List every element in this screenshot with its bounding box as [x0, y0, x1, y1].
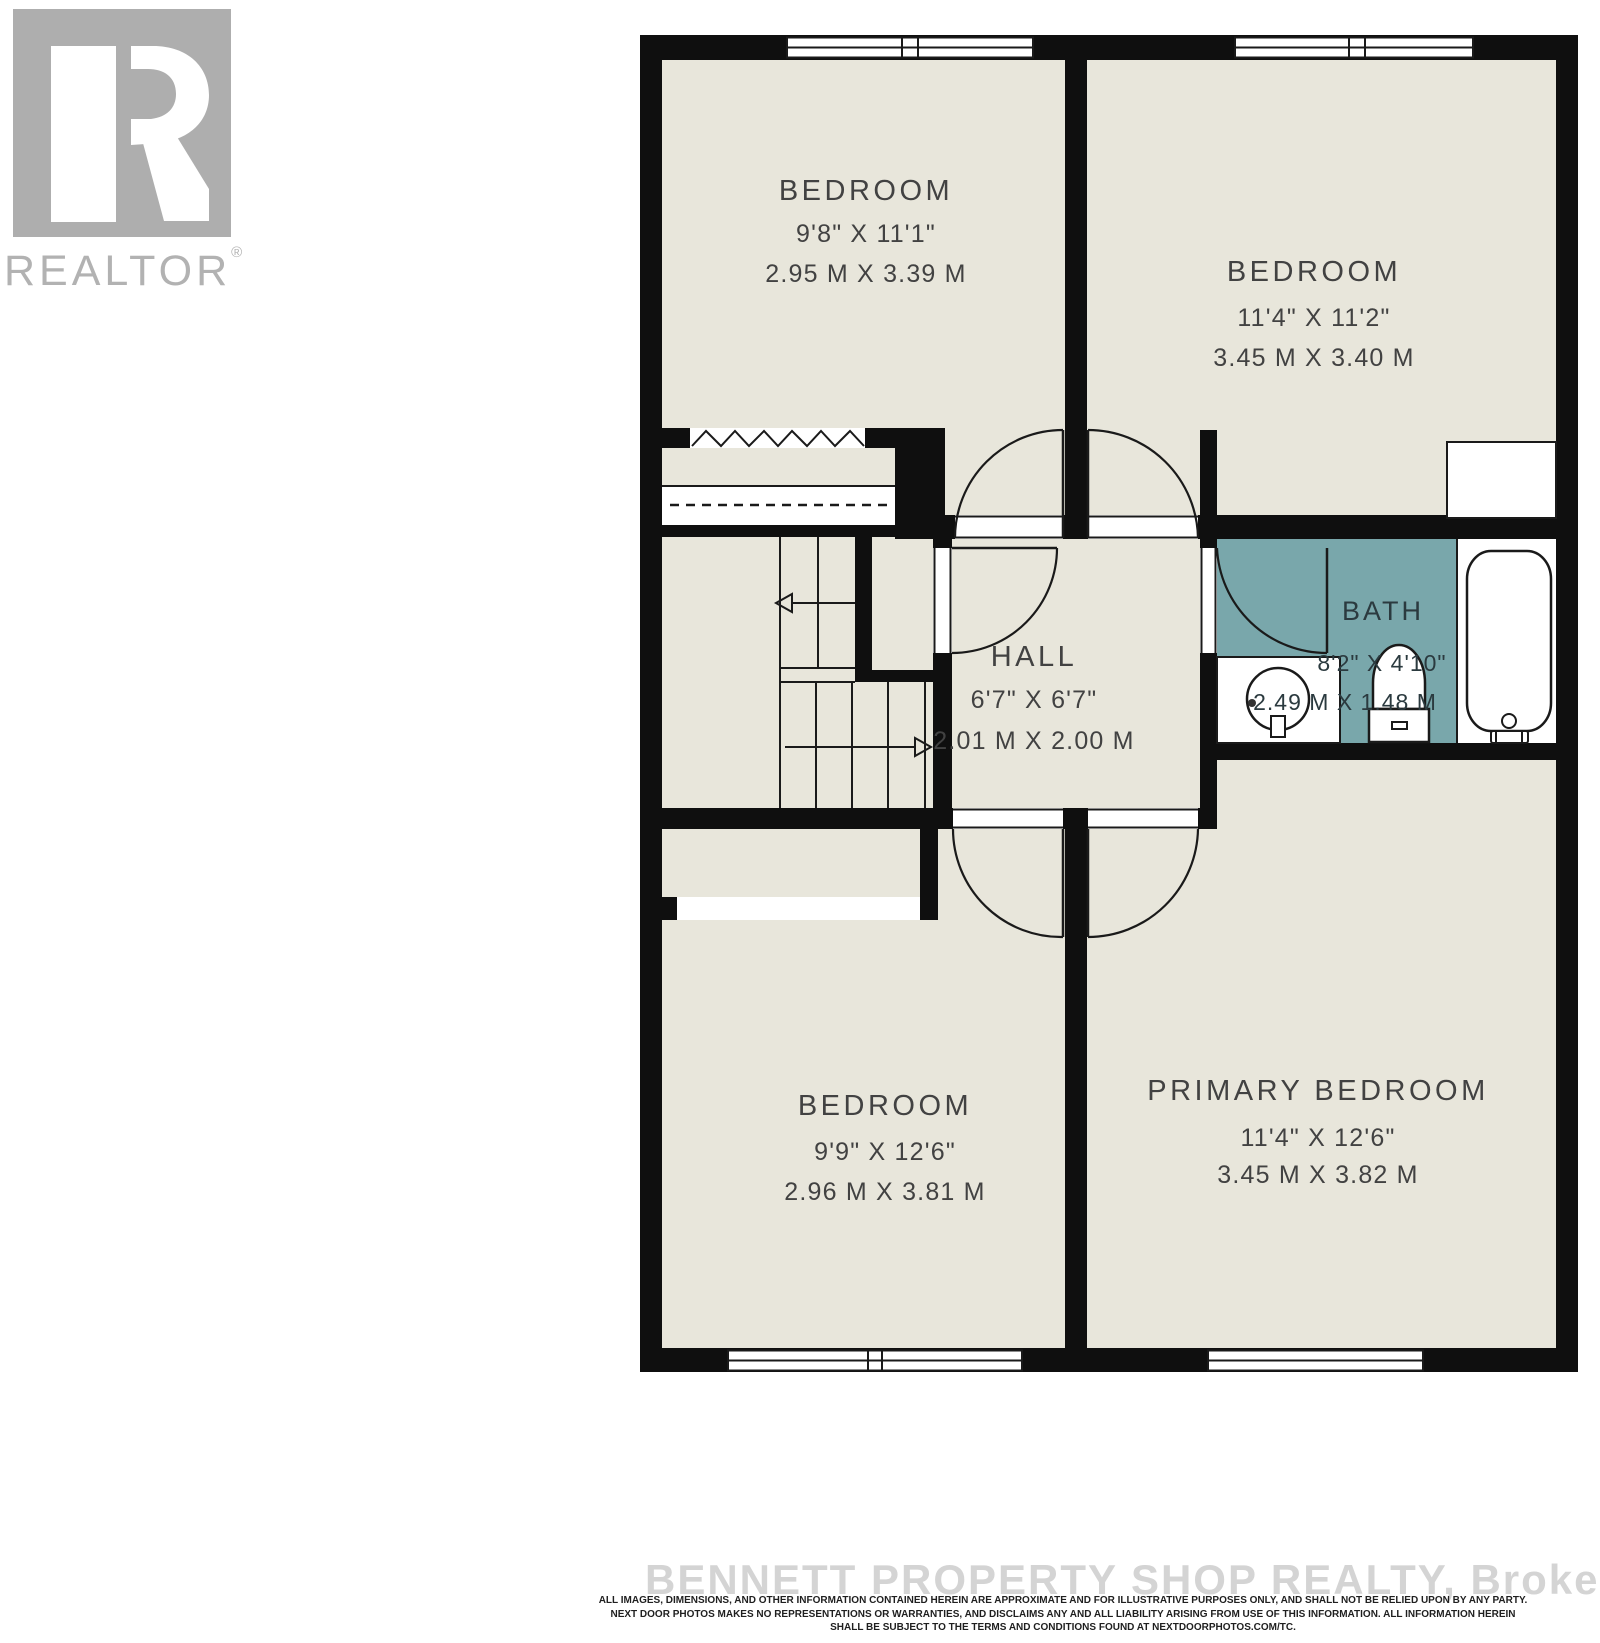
- registered-mark: ®: [231, 244, 242, 261]
- window-top-right: [1235, 38, 1473, 58]
- svg-text:2.95 M X 3.39 M: 2.95 M X 3.39 M: [765, 260, 966, 288]
- window-bottom-right: [1208, 1351, 1423, 1371]
- closet-opening-bottom-left: [677, 897, 920, 920]
- svg-text:2.96 M X 3.81 M: 2.96 M X 3.81 M: [784, 1178, 985, 1206]
- window-top-left: [787, 38, 1033, 58]
- svg-text:3.45 M X 3.40 M: 3.45 M X 3.40 M: [1213, 344, 1414, 372]
- svg-text:BEDROOM: BEDROOM: [798, 1090, 972, 1122]
- realtor-wordmark: REALTOR®: [4, 244, 256, 296]
- svg-text:BATH: BATH: [1342, 596, 1424, 626]
- svg-text:6'7" X 6'7": 6'7" X 6'7": [971, 686, 1098, 714]
- closet-top-right: [1447, 442, 1556, 518]
- svg-text:9'8" X 11'1": 9'8" X 11'1": [796, 220, 936, 248]
- bedroom-top-right-label: BEDROOM 11'4" X 11'2" 3.45 M X 3.40 M: [1213, 256, 1414, 372]
- svg-text:9'9" X 12'6": 9'9" X 12'6": [814, 1138, 956, 1166]
- disclaimer-line: NEXT DOOR PHOTOS MAKES NO REPRESENTATION…: [580, 1608, 1546, 1622]
- svg-text:8'2" X 4'10": 8'2" X 4'10": [1317, 650, 1446, 676]
- disclaimer-line: SHALL BE SUBJECT TO THE TERMS AND CONDIT…: [580, 1621, 1546, 1635]
- svg-text:2.01 M X 2.00 M: 2.01 M X 2.00 M: [933, 727, 1134, 755]
- svg-text:BEDROOM: BEDROOM: [1227, 256, 1401, 288]
- svg-text:HALL: HALL: [991, 641, 1078, 673]
- svg-text:3.45 M X 3.82 M: 3.45 M X 3.82 M: [1217, 1161, 1418, 1189]
- disclaimer: ALL IMAGES, DIMENSIONS, AND OTHER INFORM…: [580, 1594, 1546, 1635]
- bedroom-bottom-left-label: BEDROOM 9'9" X 12'6" 2.96 M X 3.81 M: [784, 1090, 985, 1206]
- svg-text:2.49 M X 1.48 M: 2.49 M X 1.48 M: [1253, 689, 1437, 715]
- svg-text:PRIMARY BEDROOM: PRIMARY BEDROOM: [1147, 1075, 1488, 1107]
- floor-plan: BEDROOM 9'8" X 11'1" 2.95 M X 3.39 M BED…: [640, 35, 1578, 1377]
- svg-text:11'4" X 12'6": 11'4" X 12'6": [1240, 1124, 1395, 1152]
- window-bottom-left: [728, 1351, 1022, 1371]
- svg-text:BEDROOM: BEDROOM: [779, 175, 953, 207]
- svg-text:11'4" X 11'2": 11'4" X 11'2": [1237, 304, 1390, 332]
- realtor-r-icon: [13, 9, 231, 237]
- bathtub-icon: [1467, 551, 1551, 743]
- realtor-logo: [13, 9, 253, 242]
- disclaimer-line: ALL IMAGES, DIMENSIONS, AND OTHER INFORM…: [580, 1594, 1546, 1608]
